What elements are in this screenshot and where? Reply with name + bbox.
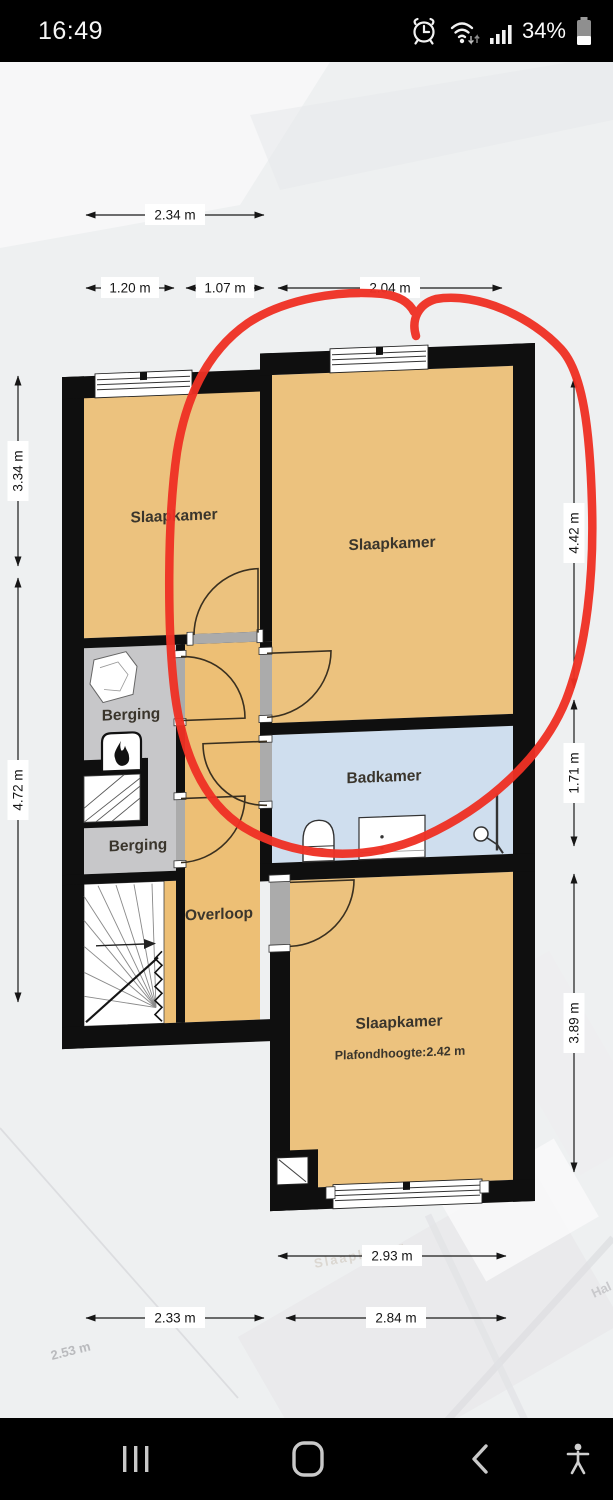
dim-right-middle: 1.71 m bbox=[567, 752, 582, 793]
android-navigation-bar bbox=[0, 1418, 613, 1500]
corner-niche bbox=[277, 1157, 308, 1185]
ghost-dimension-label: 2.53 m bbox=[49, 1339, 92, 1363]
alarm-icon bbox=[409, 14, 439, 48]
room-label-landing: Overloop bbox=[185, 905, 253, 925]
dim-left-upper: 3.34 m bbox=[11, 450, 26, 491]
status-icons: 34% bbox=[409, 14, 593, 48]
room-label-storage-bottom: Berging bbox=[109, 836, 168, 855]
floorplan-viewer[interactable]: 2.53 m Slaapkamer Hal bbox=[0, 0, 613, 1500]
recents-icon bbox=[118, 1443, 154, 1475]
home-icon bbox=[290, 1440, 326, 1478]
wifi-icon bbox=[448, 14, 480, 48]
nav-recents-button[interactable] bbox=[108, 1418, 164, 1500]
status-bar: 16:49 bbox=[0, 0, 613, 62]
dim-bottom-right: 2.84 m bbox=[375, 1311, 416, 1326]
floorplan-drawing: Slaapkamer Slaapkamer Berging Berging Ba… bbox=[62, 341, 535, 1219]
window-bedroom-left bbox=[95, 370, 192, 398]
floorplan-image: 2.53 m Slaapkamer Hal bbox=[0, 0, 613, 1500]
window-bedroom-right bbox=[330, 345, 428, 373]
room-label-storage-top: Berging bbox=[102, 705, 161, 724]
nav-back-button[interactable] bbox=[452, 1418, 508, 1500]
dim-top-left: 1.20 m bbox=[109, 281, 150, 296]
battery-percent: 34% bbox=[522, 18, 566, 44]
room-label-bedroom-bottom: Slaapkamer bbox=[356, 1013, 443, 1033]
dim-bottom-inner: 2.93 m bbox=[371, 1249, 412, 1264]
dim-left-lower: 4.72 m bbox=[11, 769, 26, 810]
dim-bottom-left: 2.33 m bbox=[154, 1311, 195, 1326]
back-icon bbox=[467, 1439, 493, 1479]
dim-top-mid: 1.07 m bbox=[204, 281, 245, 296]
signal-strength-icon bbox=[489, 14, 513, 48]
fireplace-icon bbox=[102, 732, 141, 771]
dim-top-total: 2.34 m bbox=[154, 208, 195, 223]
dim-right-upper: 4.42 m bbox=[567, 512, 582, 553]
battery-icon bbox=[575, 14, 593, 48]
nav-home-button[interactable] bbox=[280, 1418, 336, 1500]
room-label-bedroom-right: Slaapkamer bbox=[349, 534, 436, 554]
clock-time: 16:49 bbox=[38, 17, 103, 46]
room-label-bathroom: Badkamer bbox=[347, 767, 422, 787]
nav-accessibility-button[interactable] bbox=[556, 1418, 600, 1500]
phone-screen: 16:49 bbox=[0, 0, 613, 1500]
hatched-stair-flight bbox=[84, 774, 140, 822]
dim-right-lower: 3.89 m bbox=[567, 1002, 582, 1043]
accessibility-icon bbox=[563, 1441, 593, 1477]
